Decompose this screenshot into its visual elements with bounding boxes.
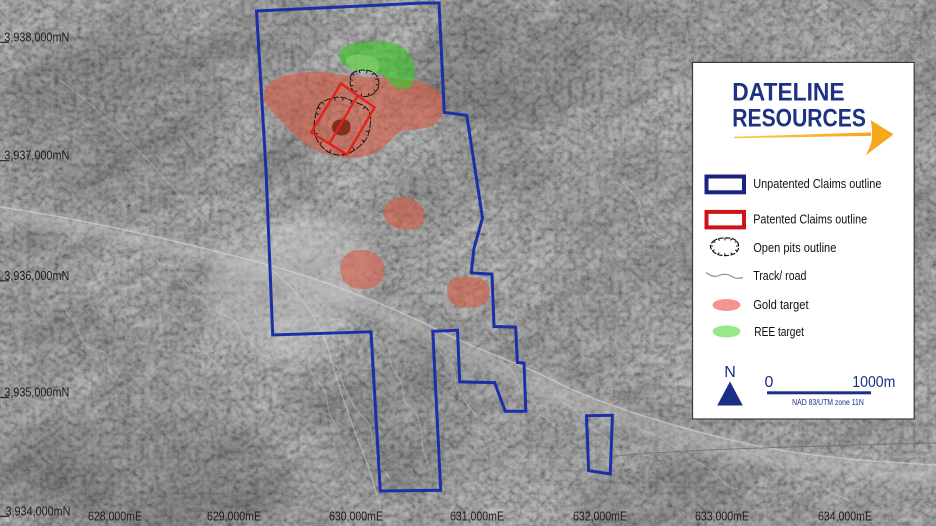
svg-text:3,936,000mN: 3,936,000mN	[4, 268, 69, 283]
svg-text:3,934,000mN: 3,934,000mN	[6, 503, 71, 518]
svg-text:3,937,000mN: 3,937,000mN	[4, 148, 69, 163]
svg-text:633,000mE: 633,000mE	[695, 509, 749, 524]
svg-text:1000m: 1000m	[852, 374, 895, 391]
svg-text:631,000mE: 631,000mE	[450, 509, 504, 524]
svg-text:DATELINE: DATELINE	[732, 79, 844, 107]
svg-text:632,000mE: 632,000mE	[573, 509, 627, 524]
svg-text:3,938,000mN: 3,938,000mN	[4, 29, 69, 44]
svg-text:Patented Claims outline: Patented Claims outline	[753, 212, 867, 226]
svg-text:Track/ road: Track/ road	[753, 269, 806, 283]
svg-text:634,000mE: 634,000mE	[818, 509, 872, 524]
svg-text:3,935,000mN: 3,935,000mN	[4, 385, 69, 400]
svg-text:Unpatented Claims outline: Unpatented Claims outline	[753, 177, 881, 191]
svg-text:Open pits outline: Open pits outline	[753, 241, 836, 255]
svg-text:RESOURCES: RESOURCES	[732, 104, 866, 132]
svg-text:REE target: REE target	[754, 325, 804, 339]
svg-text:Gold target: Gold target	[753, 298, 809, 312]
svg-text:N: N	[724, 364, 736, 381]
svg-text:0: 0	[765, 374, 774, 391]
svg-text:629,000mE: 629,000mE	[207, 509, 261, 524]
svg-text:NAD 83/UTM zone 11N: NAD 83/UTM zone 11N	[792, 397, 864, 407]
svg-text:628,000mE: 628,000mE	[88, 509, 142, 524]
svg-text:630,000mE: 630,000mE	[329, 509, 383, 524]
